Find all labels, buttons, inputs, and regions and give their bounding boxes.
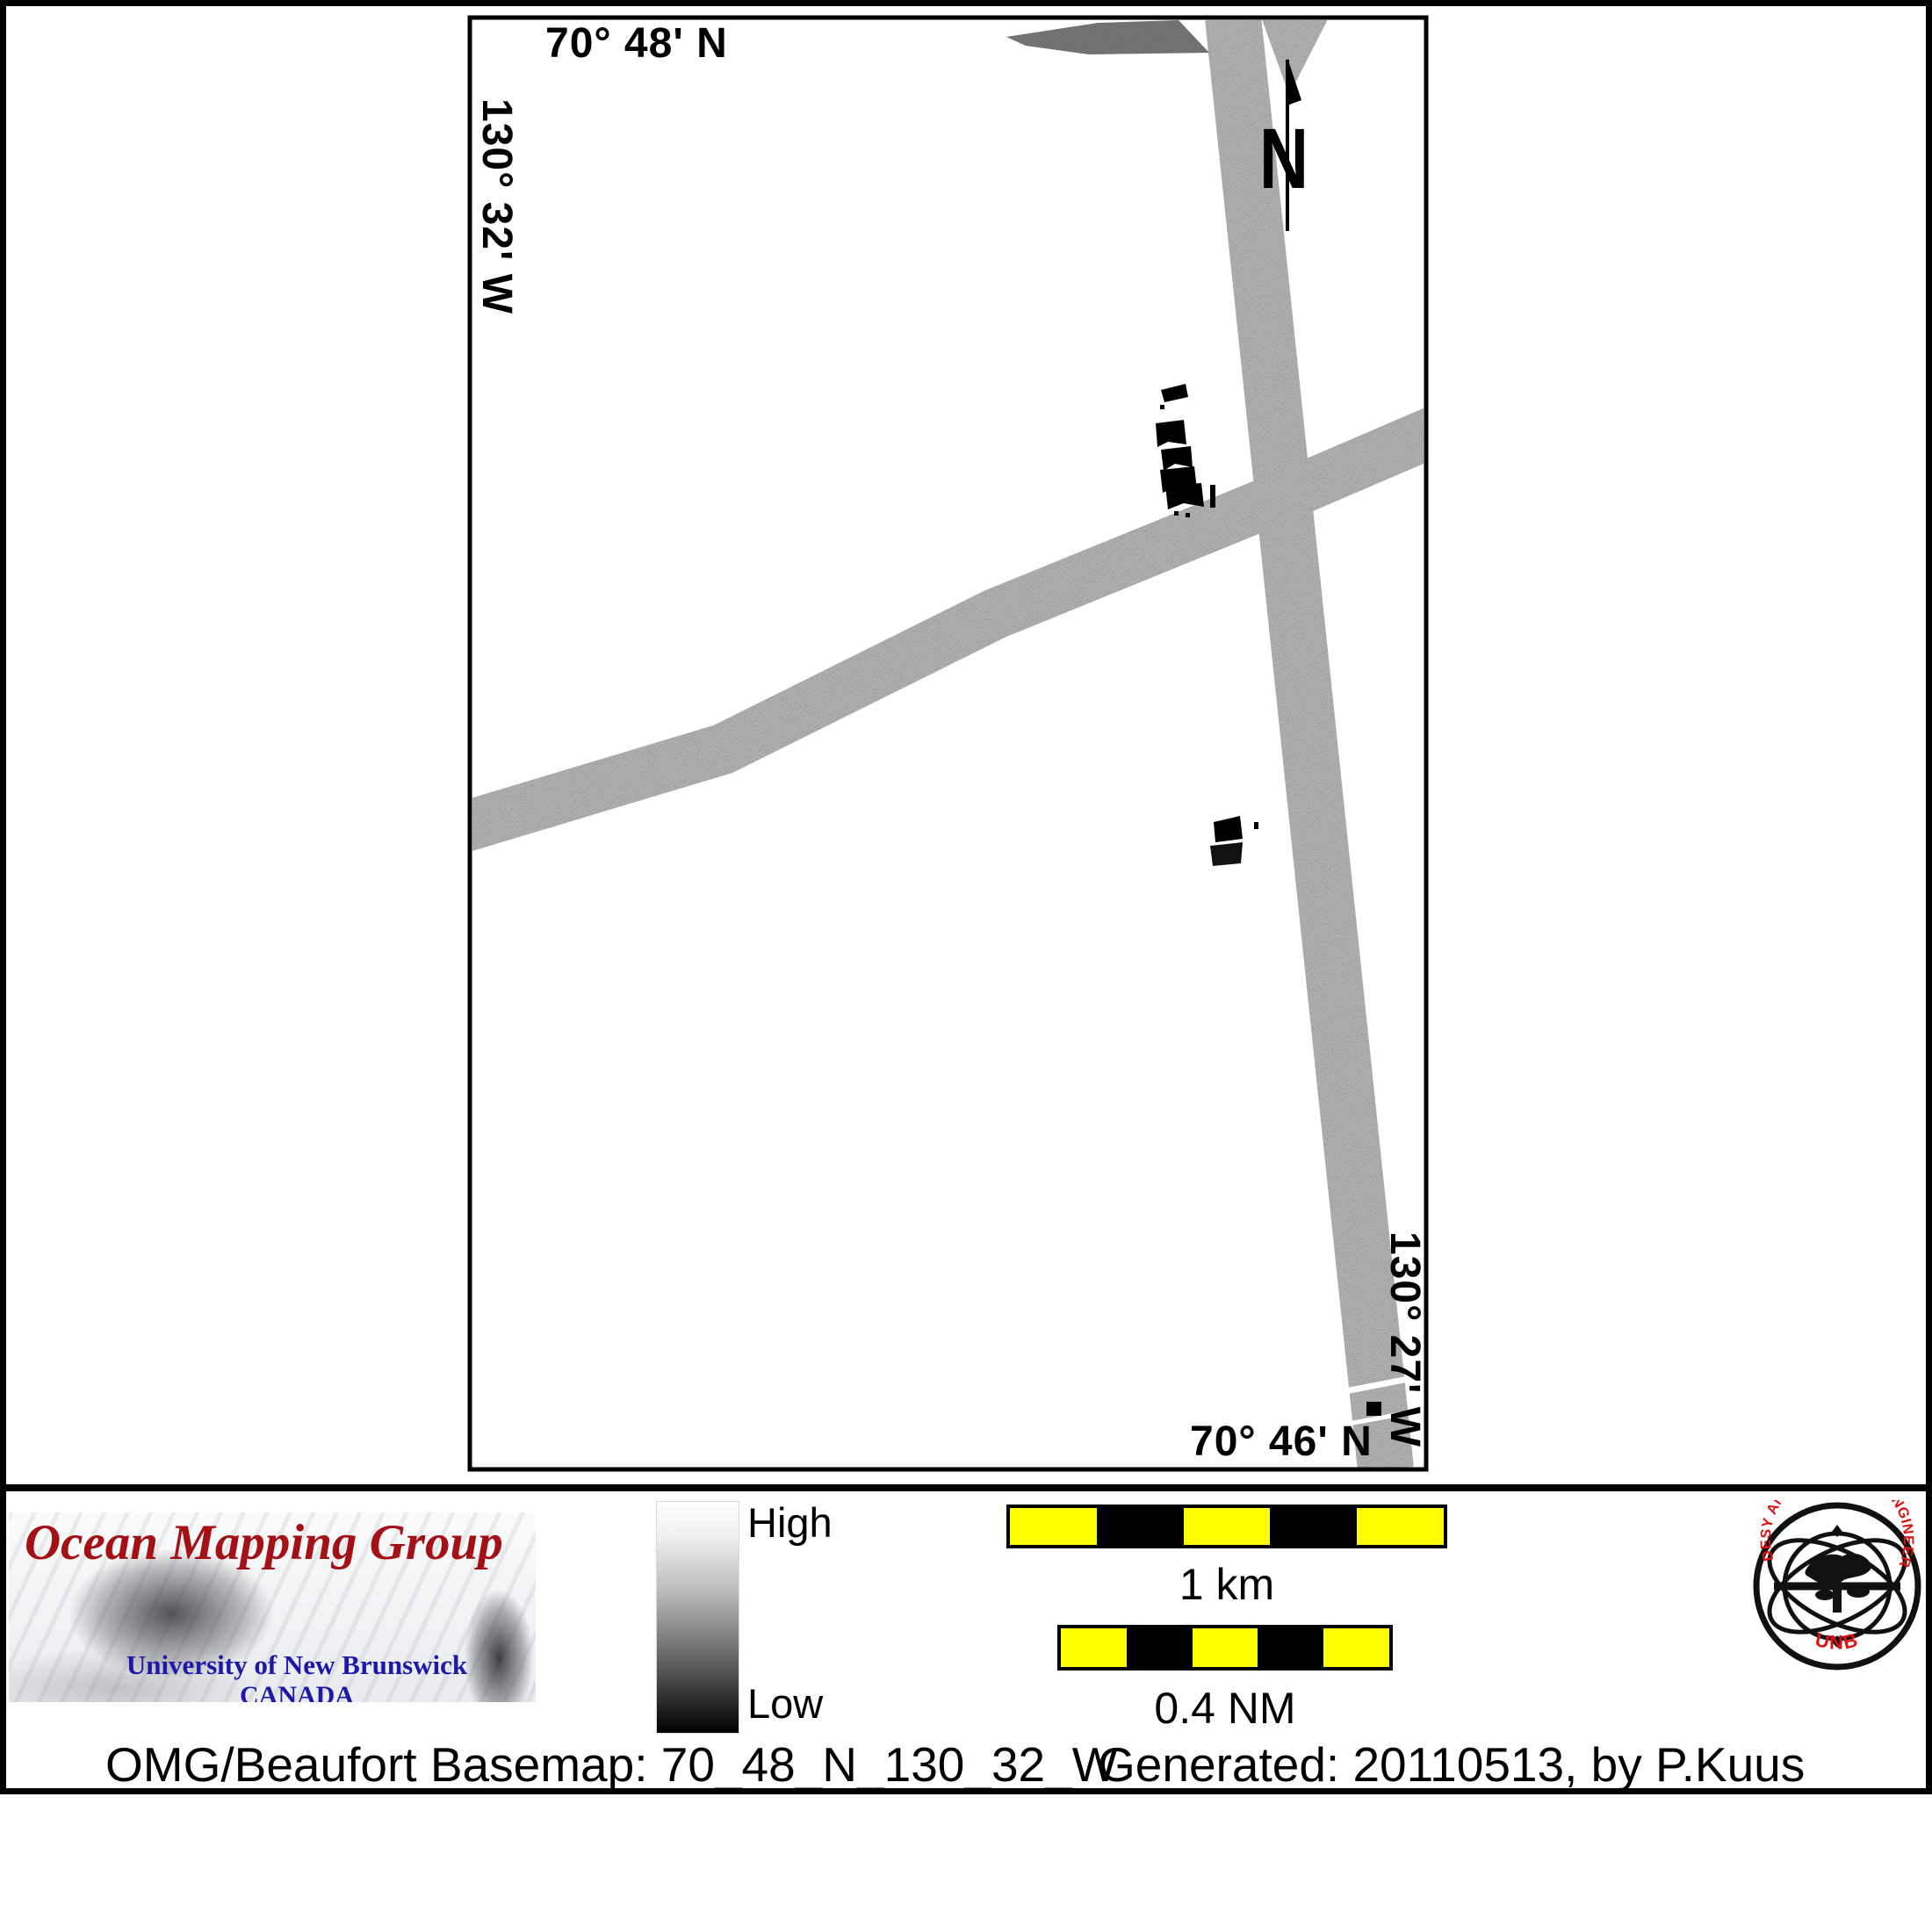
- swath-wedge-segment: [1006, 20, 1209, 54]
- sonar-target-pair: [1210, 816, 1258, 866]
- scalebar-nm-label: 0.4 NM: [1057, 1683, 1393, 1734]
- map-label-bottom-latitude: 70° 46' N: [1190, 1418, 1373, 1466]
- colorbar-high-label: High: [747, 1498, 833, 1547]
- omg-basemap-image: { "map": { "top_lat": "70° 48' N", "bott…: [0, 0, 1932, 1794]
- colorbar-low-label: Low: [747, 1679, 823, 1728]
- map-label-right-longitude: 130° 27' W: [1381, 1231, 1429, 1447]
- map-canvas: [0, 0, 1932, 1794]
- map-label-top-latitude: 70° 48' N: [545, 19, 728, 68]
- north-arrow-label: N: [1259, 116, 1308, 201]
- scalebar-km-label: 1 km: [1006, 1559, 1447, 1610]
- legend-separator: [0, 1484, 1932, 1491]
- map-label-left-longitude: 130° 32' W: [472, 98, 521, 314]
- sonar-target-cluster: [1156, 384, 1215, 517]
